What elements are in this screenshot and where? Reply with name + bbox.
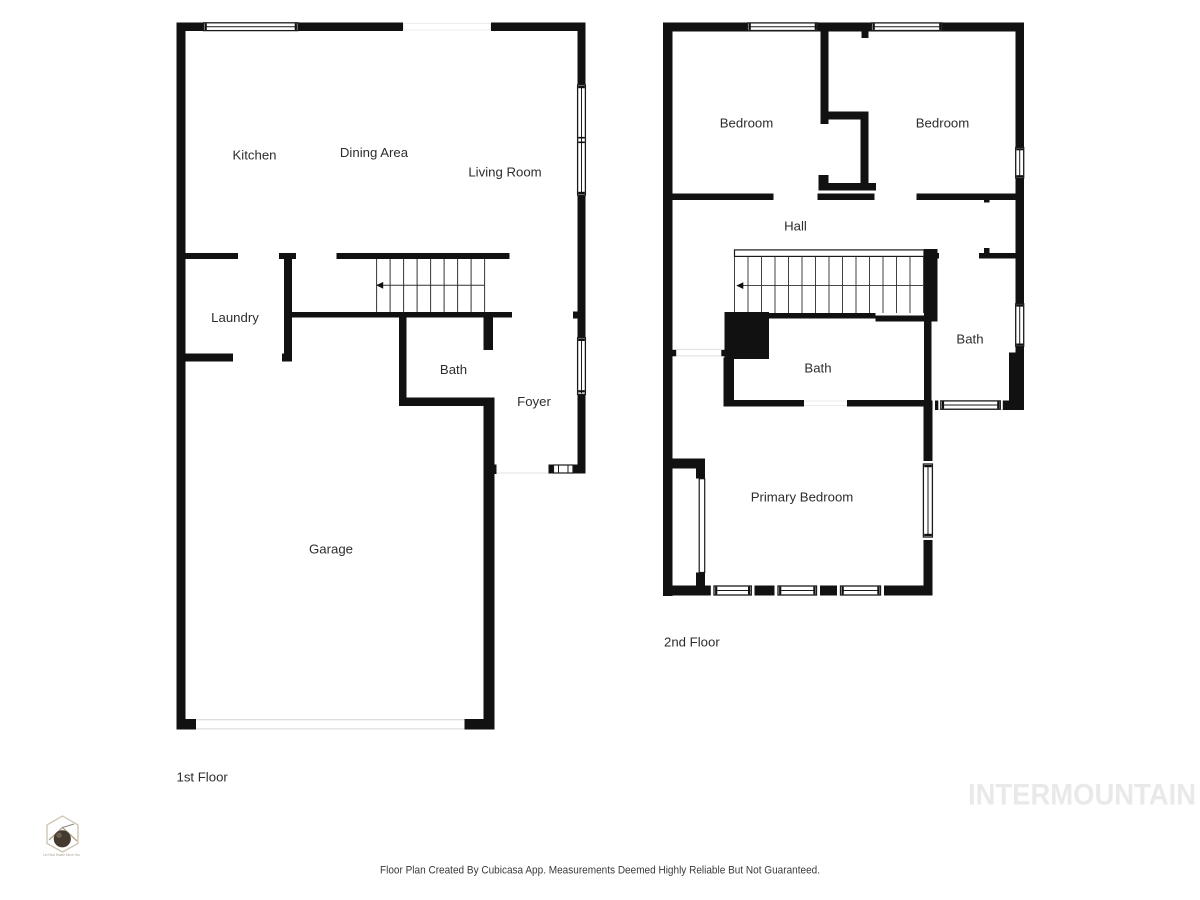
- svg-text:2nd Floor: 2nd Floor: [664, 635, 720, 650]
- svg-text:Foyer: Foyer: [517, 394, 551, 409]
- svg-text:Floor Plan Created By Cubicasa: Floor Plan Created By Cubicasa App. Meas…: [380, 865, 820, 877]
- svg-text:Laundry: Laundry: [211, 310, 259, 325]
- svg-text:Bath: Bath: [956, 332, 983, 347]
- svg-text:Living Room: Living Room: [468, 165, 541, 180]
- svg-text:Kitchen: Kitchen: [233, 148, 277, 163]
- svg-text:Hall: Hall: [784, 219, 807, 234]
- svg-text:Bedroom: Bedroom: [916, 116, 970, 131]
- svg-text:Dining Area: Dining Area: [340, 145, 409, 160]
- svg-text:Bedroom: Bedroom: [720, 116, 774, 131]
- svg-text:Bath: Bath: [804, 361, 831, 376]
- svg-text:INTERMOUNTAIN: INTERMOUNTAIN: [968, 779, 1196, 812]
- svg-text:Primary Bedroom: Primary Bedroom: [751, 490, 854, 505]
- svg-text:Let Real Estate Move You: Let Real Estate Move You: [43, 853, 80, 857]
- svg-text:1st Floor: 1st Floor: [177, 770, 229, 785]
- svg-text:Bath: Bath: [440, 362, 467, 377]
- svg-text:Garage: Garage: [309, 542, 353, 557]
